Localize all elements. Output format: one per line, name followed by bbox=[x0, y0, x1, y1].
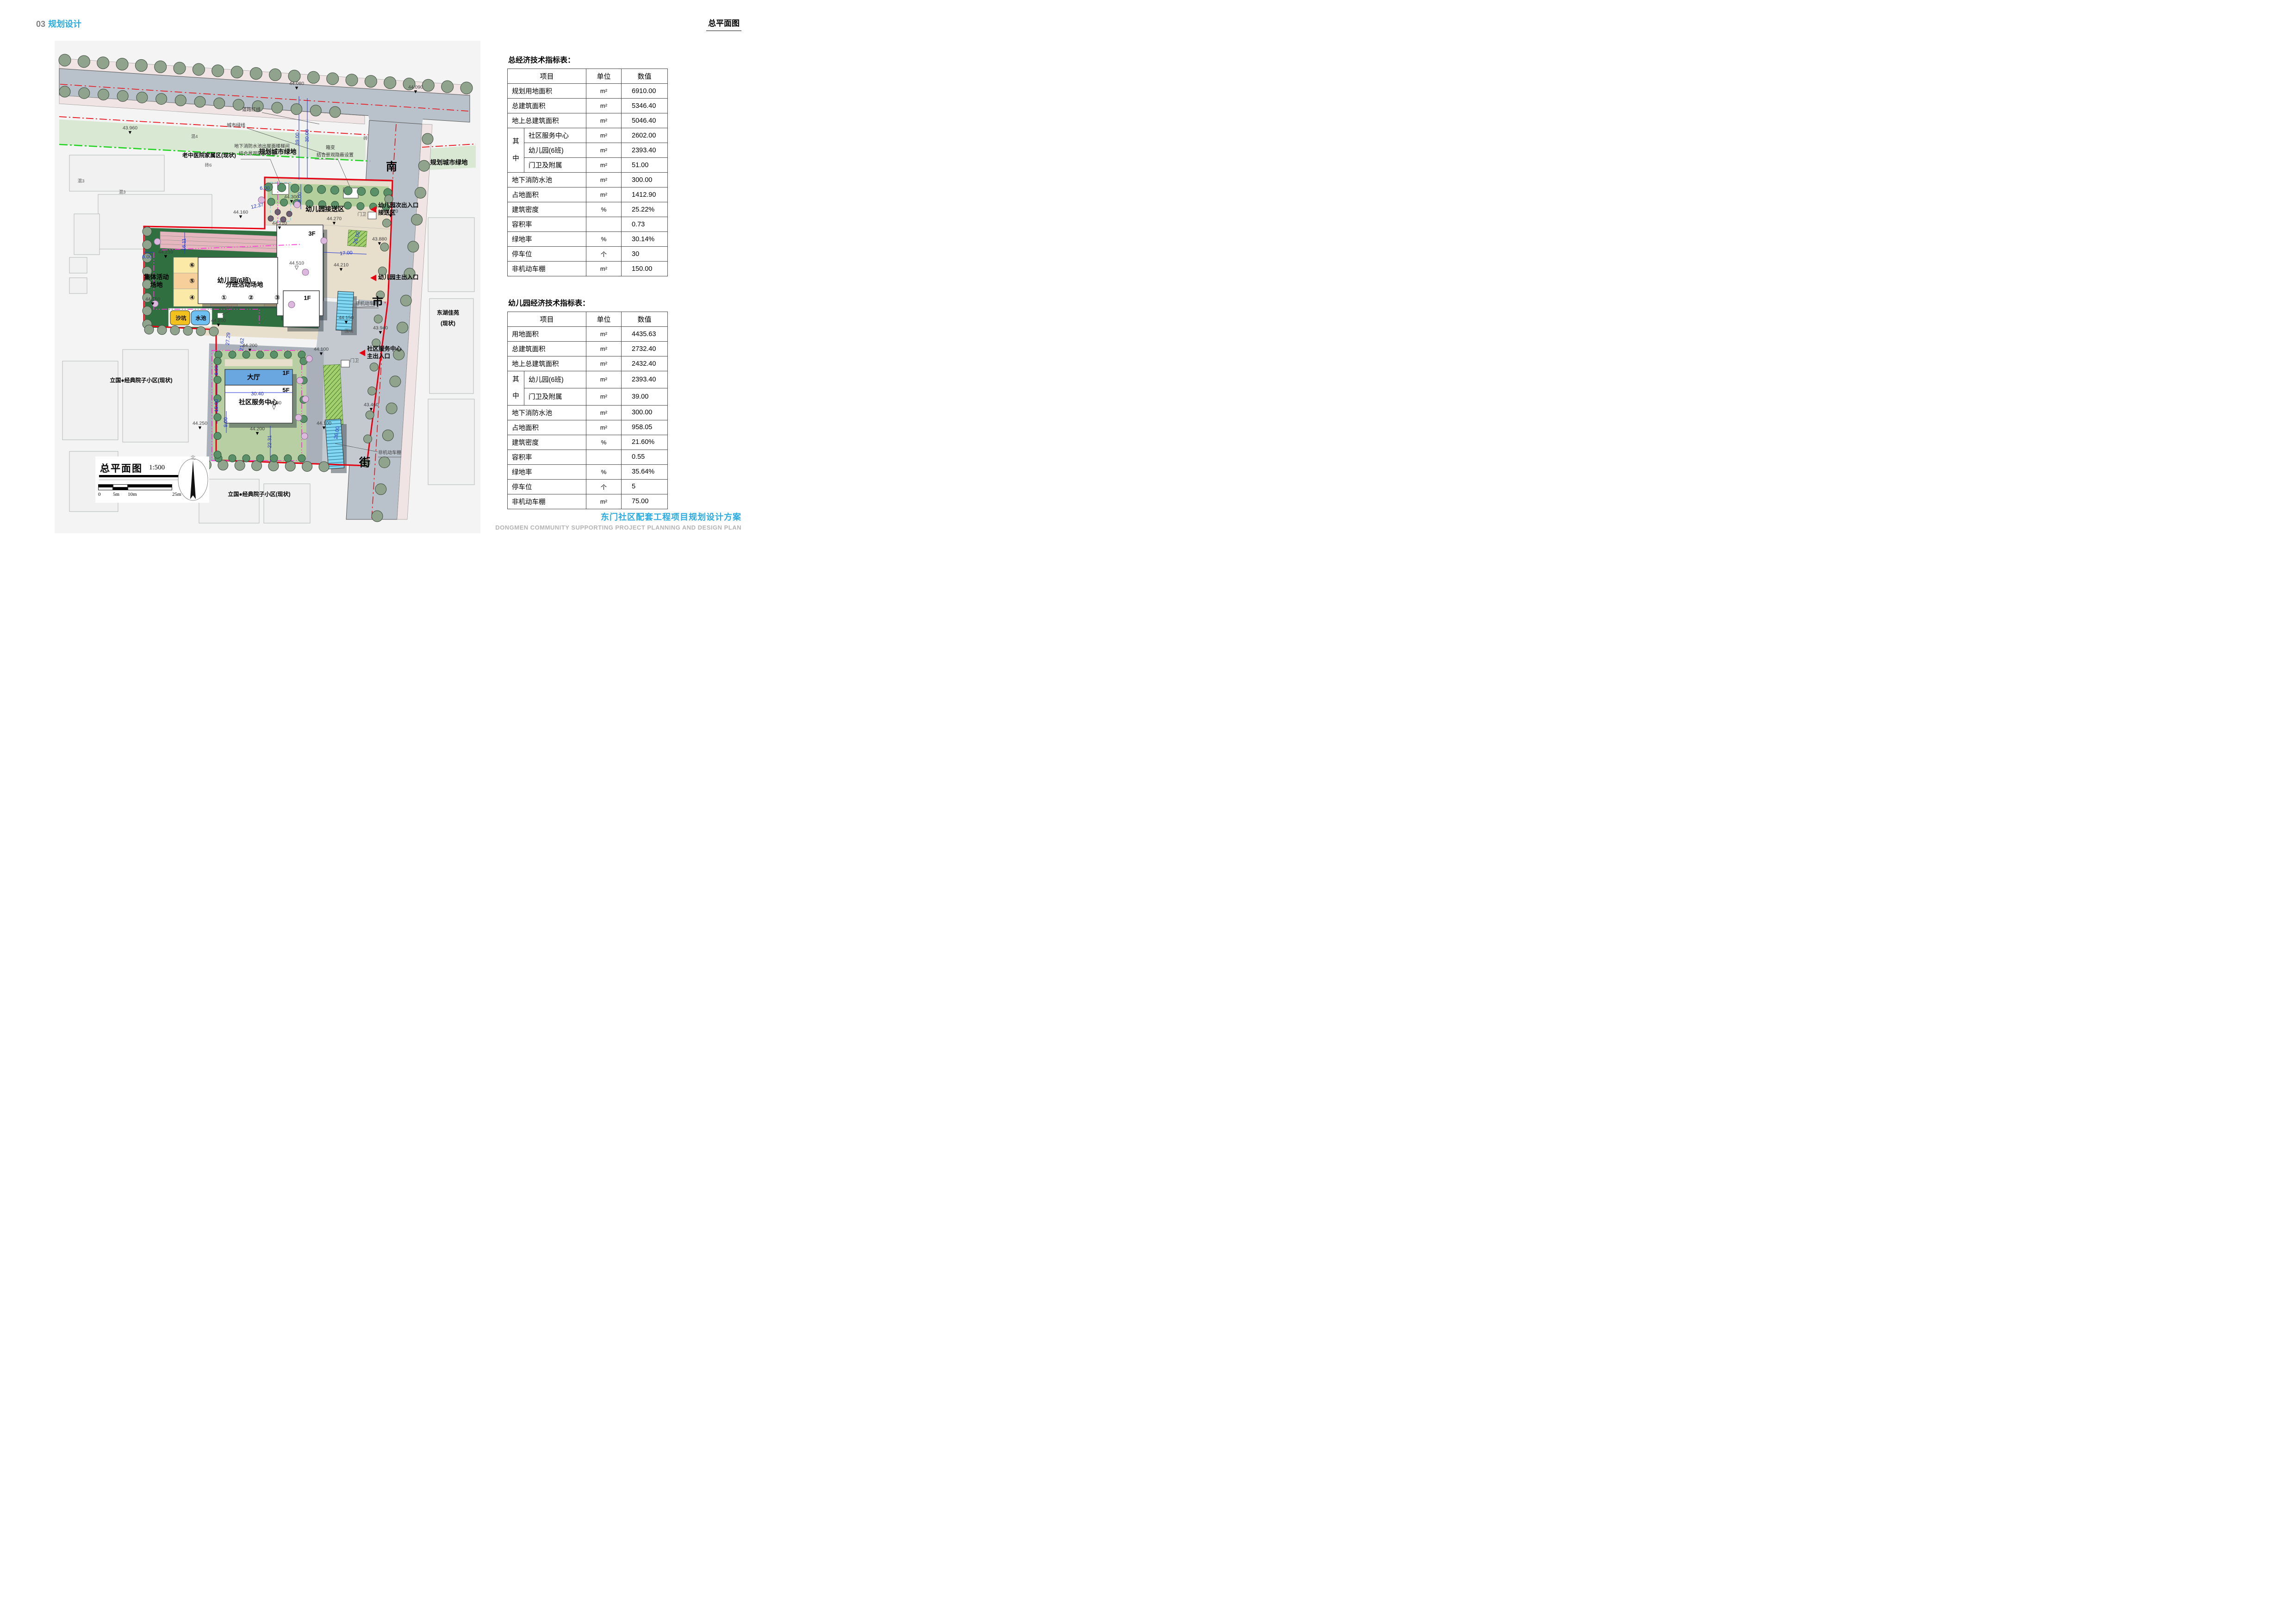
row-item: 占地面积 bbox=[508, 187, 586, 202]
row-unit: % bbox=[586, 202, 622, 217]
project-title-cn: 东门社区配套工程项目规划设计方案 bbox=[495, 511, 741, 523]
row-item: 用地面积 bbox=[508, 327, 586, 342]
row-unit: m² bbox=[586, 388, 622, 405]
elevation-triangle-icon: ▼ bbox=[334, 267, 348, 272]
plan-label: 5F bbox=[282, 387, 289, 394]
row-unit bbox=[586, 450, 622, 464]
row-value: 0.73 bbox=[622, 217, 668, 232]
legend: 总平面图 1:500 北 05m10m25m bbox=[95, 456, 209, 503]
indicator-tables: 总经济技术指标表： 项目单位数值规划用地面积m²6910.00总建筑面积m²53… bbox=[507, 54, 668, 530]
row-item: 总建筑面积 bbox=[508, 99, 586, 113]
col-value: 数值 bbox=[622, 312, 668, 327]
elevation-triangle-icon: ▼ bbox=[233, 214, 248, 219]
tree-icon bbox=[330, 186, 339, 194]
row-item: 占地面积 bbox=[508, 420, 586, 435]
tree-icon bbox=[78, 56, 90, 68]
row-value: 25.22% bbox=[622, 202, 668, 217]
tree-icon bbox=[243, 455, 250, 462]
plan-label: 集体活动 场地 bbox=[144, 274, 169, 289]
elevation-marker: 44.210▼ bbox=[334, 263, 348, 273]
tree-icon bbox=[288, 70, 300, 82]
entrance-label: 幼儿园次出入口 接送区 bbox=[378, 202, 419, 216]
plan-label: 东湖佳苑 bbox=[437, 310, 459, 317]
tree-icon bbox=[422, 79, 434, 91]
row-unit bbox=[586, 217, 622, 232]
elevation-triangle-icon: ▼ bbox=[289, 86, 304, 91]
tree-icon bbox=[344, 202, 351, 209]
col-unit: 单位 bbox=[586, 312, 622, 327]
plan-label: 旗台 bbox=[225, 306, 234, 312]
row-unit: m² bbox=[586, 356, 622, 371]
elevation-triangle-icon: ▼ bbox=[317, 425, 331, 431]
tree-icon bbox=[137, 92, 148, 103]
row-unit: m² bbox=[586, 173, 622, 187]
row-value: 39.00 bbox=[622, 388, 668, 405]
plan-label: 老中医院家属区(现状) bbox=[182, 152, 236, 159]
elevation-marker: 44.150▼ bbox=[145, 297, 160, 307]
tree-icon bbox=[174, 62, 186, 74]
table-total-title: 总经济技术指标表： bbox=[508, 54, 668, 65]
tree-icon bbox=[366, 411, 374, 419]
plan-label: 规划城市绿地 bbox=[430, 159, 468, 167]
row-value: 5346.40 bbox=[622, 99, 668, 113]
row-unit: % bbox=[586, 435, 622, 450]
tree-icon bbox=[214, 98, 225, 109]
tree-icon bbox=[256, 351, 264, 358]
tree-icon bbox=[268, 198, 275, 206]
table-total-indicators: 总经济技术指标表： 项目单位数值规划用地面积m²6910.00总建筑面积m²53… bbox=[507, 54, 668, 276]
scale-bar-segment bbox=[113, 487, 128, 490]
elevation-triangle-icon: ▽ bbox=[289, 265, 304, 270]
plan-label: (现状) bbox=[441, 320, 455, 327]
tree-icon bbox=[302, 396, 309, 402]
tree-icon bbox=[408, 241, 419, 252]
elevation-marker: 44.150▼ bbox=[339, 316, 354, 325]
plan-label: 结合景观隐蔽设置 bbox=[239, 151, 276, 157]
elevation-triangle-icon: ▼ bbox=[272, 225, 287, 231]
elevation-marker: 44.100▼ bbox=[317, 421, 331, 431]
elevation-marker: 44.080▼ bbox=[289, 81, 304, 91]
tree-icon bbox=[291, 184, 299, 193]
tree-icon bbox=[270, 455, 278, 462]
class-zone-number: ① bbox=[221, 294, 227, 302]
elevation-marker: 44.200▼ bbox=[250, 427, 265, 437]
row-item: 地下消防水池 bbox=[508, 405, 586, 420]
tree-icon bbox=[250, 68, 262, 80]
tree-icon bbox=[235, 460, 245, 470]
plan-label: 混3 bbox=[119, 190, 126, 195]
tree-icon bbox=[214, 413, 221, 421]
row-item: 容积率 bbox=[508, 217, 586, 232]
col-unit: 单位 bbox=[586, 69, 622, 84]
tree-icon bbox=[284, 455, 292, 462]
plan-label: 砖 bbox=[363, 136, 368, 142]
tree-icon bbox=[364, 435, 372, 443]
grass-paver-south bbox=[324, 364, 343, 425]
row-item: 建筑密度 bbox=[508, 202, 586, 217]
tree-icon bbox=[256, 455, 264, 462]
table-row: 绿地率%35.64% bbox=[508, 464, 668, 479]
plan-label: 混4 bbox=[191, 134, 198, 140]
row-value: 5046.40 bbox=[622, 113, 668, 128]
row-value: 30.14% bbox=[622, 232, 668, 247]
row-unit: % bbox=[586, 232, 622, 247]
elevation-marker: 44.300▼ bbox=[284, 195, 299, 205]
tree-icon bbox=[357, 202, 364, 210]
table-row: 门卫及附属m²39.00 bbox=[508, 388, 668, 405]
table-row: 停车位个5 bbox=[508, 479, 668, 494]
table-row: 地上总建筑面积m²5046.40 bbox=[508, 113, 668, 128]
elevation-marker: 43.940▼ bbox=[373, 326, 388, 336]
row-item: 建筑密度 bbox=[508, 435, 586, 450]
north-label: 北 bbox=[191, 454, 196, 461]
tree-icon bbox=[155, 61, 167, 73]
table-row: 地上总建筑面积m²2432.40 bbox=[508, 356, 668, 371]
plan-label: 结合景观隐蔽设置 bbox=[317, 153, 354, 159]
tree-icon bbox=[214, 451, 221, 458]
plan-label: 立国●经典院子小区(现状) bbox=[110, 377, 172, 384]
entrance-marker: 幼儿园主出入口 bbox=[370, 274, 419, 281]
table-row: 非机动车棚m²75.00 bbox=[508, 494, 668, 509]
tree-icon bbox=[278, 183, 286, 192]
tree-icon bbox=[212, 65, 224, 77]
entrance-marker: 社区服务中心 主出入口 bbox=[359, 345, 402, 360]
row-unit: m² bbox=[586, 99, 622, 113]
dimension-label: 6.00 bbox=[142, 254, 152, 261]
row-unit: m² bbox=[586, 113, 622, 128]
scale-bar-segment bbox=[98, 487, 113, 490]
row-value: 5 bbox=[622, 479, 668, 494]
row-item: 绿地率 bbox=[508, 464, 586, 479]
scale-tick-label: 25m bbox=[172, 492, 181, 497]
legend-title: 总平面图 bbox=[100, 461, 143, 475]
elevation-triangle-icon: ▼ bbox=[339, 320, 354, 325]
tree-icon bbox=[59, 54, 71, 66]
elevation-triangle-icon: ▼ bbox=[145, 301, 160, 306]
row-unit: m² bbox=[586, 327, 622, 342]
dimension-label: 17.00 bbox=[340, 250, 353, 257]
group-label: 其 中 bbox=[508, 371, 524, 406]
tree-icon bbox=[382, 430, 393, 441]
class-zone-number: ⑥ bbox=[189, 262, 195, 269]
elevation-triangle-icon: ▼ bbox=[250, 431, 265, 436]
tree-icon bbox=[319, 462, 329, 472]
row-value: 6910.00 bbox=[622, 84, 668, 99]
row-value: 1412.90 bbox=[622, 187, 668, 202]
class-zone-number: ③ bbox=[274, 294, 280, 302]
table-row: 门卫及附属m²51.00 bbox=[508, 158, 668, 173]
tree-icon bbox=[156, 94, 167, 105]
table-total: 项目单位数值规划用地面积m²6910.00总建筑面积m²5346.40地上总建筑… bbox=[507, 69, 668, 276]
col-item: 项目 bbox=[508, 312, 586, 327]
table-row: 建筑密度%25.22% bbox=[508, 202, 668, 217]
tree-icon bbox=[284, 351, 292, 358]
street-name-char: 市 bbox=[372, 295, 384, 309]
plan-label: 道路红线 bbox=[242, 107, 261, 113]
tree-icon bbox=[390, 376, 401, 387]
row-value: 300.00 bbox=[622, 173, 668, 187]
tree-icon bbox=[298, 455, 305, 462]
row-item: 门卫及附属 bbox=[524, 158, 586, 173]
plan-label: 1F bbox=[304, 294, 311, 302]
tree-icon bbox=[346, 74, 358, 86]
row-unit: m² bbox=[586, 371, 622, 388]
elevation-triangle-icon: ▽ bbox=[267, 405, 281, 410]
dimension-label: 6.00 bbox=[260, 186, 269, 192]
tree-icon bbox=[400, 295, 411, 306]
dimension-label: 30.40 bbox=[251, 391, 264, 398]
tree-icon bbox=[301, 433, 308, 439]
elevation-marker: 44.210▼ bbox=[158, 250, 173, 260]
class-zone-number: ⑤ bbox=[189, 277, 195, 285]
north-arrow: 北 bbox=[177, 454, 209, 503]
dimension-label: 27.29 bbox=[225, 332, 232, 346]
tree-icon bbox=[291, 104, 302, 115]
row-item: 地上总建筑面积 bbox=[508, 356, 586, 371]
tree-icon bbox=[193, 63, 205, 75]
tree-icon bbox=[321, 237, 327, 244]
table-row: 其 中幼儿园(6班)m²2393.40 bbox=[508, 371, 668, 388]
table-row: 总建筑面积m²2732.40 bbox=[508, 342, 668, 356]
tree-icon bbox=[382, 219, 391, 227]
tree-icon bbox=[135, 59, 147, 71]
elevation-marker: 43.960▼ bbox=[123, 126, 137, 136]
table-row: 停车位个30 bbox=[508, 247, 668, 262]
page: 规划城市绿地规划城市绿地道路红线城市绿线地下消防水池出屋面楼梯间结合景观隐蔽设置… bbox=[0, 0, 765, 541]
table-row: 其 中社区服务中心m²2602.00 bbox=[508, 128, 668, 143]
tree-icon bbox=[310, 105, 321, 116]
elevation-triangle-icon: ▼ bbox=[314, 351, 329, 356]
row-value: 2393.40 bbox=[622, 371, 668, 388]
plan-label: 分班活动场地 bbox=[226, 281, 263, 289]
plan-label: 地下消防水池出屋面楼梯间 bbox=[234, 144, 290, 150]
row-value: 2602.00 bbox=[622, 128, 668, 143]
plan-label: 大厅 bbox=[247, 373, 260, 381]
elevation-marker: 44.200▼ bbox=[211, 319, 226, 328]
tree-icon bbox=[116, 58, 128, 70]
tree-icon bbox=[214, 376, 221, 383]
tree-icon bbox=[288, 301, 295, 308]
tree-icon bbox=[194, 96, 205, 107]
tree-icon bbox=[229, 351, 236, 358]
tree-icon bbox=[98, 89, 109, 100]
row-value: 30 bbox=[622, 247, 668, 262]
tree-icon bbox=[209, 327, 218, 336]
tree-icon bbox=[268, 461, 279, 471]
tree-icon bbox=[157, 325, 167, 335]
class-zone-number: ④ bbox=[189, 294, 195, 302]
tree-icon bbox=[297, 377, 303, 384]
tree-icon bbox=[196, 326, 205, 336]
tree-icon bbox=[183, 326, 193, 335]
row-item: 规划用地面积 bbox=[508, 84, 586, 99]
scale-bar-segment bbox=[128, 487, 172, 490]
row-unit: 个 bbox=[586, 247, 622, 262]
group-label: 其 中 bbox=[508, 128, 524, 173]
table-kindergarten: 项目单位数值用地面积m²4435.63总建筑面积m²2732.40地上总建筑面积… bbox=[507, 312, 668, 509]
street-name-char: 南 bbox=[386, 160, 398, 174]
flag-platform bbox=[218, 313, 223, 318]
row-unit: m² bbox=[586, 420, 622, 435]
row-item: 停车位 bbox=[508, 247, 586, 262]
row-value: 35.64% bbox=[622, 464, 668, 479]
col-value: 数值 bbox=[622, 69, 668, 84]
elevation-marker: 44.160▼ bbox=[233, 210, 248, 220]
tree-icon bbox=[295, 414, 302, 421]
tree-icon bbox=[442, 81, 454, 93]
tree-icon bbox=[79, 87, 90, 99]
tree-icon bbox=[370, 363, 378, 371]
elevation-triangle-icon: ▼ bbox=[243, 348, 257, 353]
tree-icon bbox=[285, 461, 295, 471]
legend-rule bbox=[99, 475, 186, 477]
row-unit: % bbox=[586, 464, 622, 479]
table-kindergarten-indicators: 幼儿园经济技术指标表： 项目单位数值用地面积m²4435.63总建筑面积m²27… bbox=[507, 297, 668, 509]
row-value: 2393.40 bbox=[622, 143, 668, 158]
plan-label: 非机动车棚 bbox=[378, 450, 401, 457]
dimension-label: 22.31 bbox=[267, 435, 274, 448]
tree-icon bbox=[272, 102, 283, 113]
plan-label: 门卫 bbox=[350, 358, 359, 364]
row-item: 容积率 bbox=[508, 450, 586, 464]
row-unit: m² bbox=[586, 128, 622, 143]
table-row: 建筑密度%21.60% bbox=[508, 435, 668, 450]
elevation-marker: 44.500▽ bbox=[267, 401, 281, 411]
tree-icon bbox=[269, 69, 281, 81]
row-unit: m² bbox=[586, 84, 622, 99]
plan-label: 1F bbox=[282, 369, 289, 377]
table-row: 容积率0.55 bbox=[508, 450, 668, 464]
tree-icon bbox=[215, 351, 222, 358]
tree-icon bbox=[460, 82, 473, 94]
community-path bbox=[225, 359, 292, 366]
table-row: 幼儿园(6班)m²2393.40 bbox=[508, 143, 668, 158]
tree-icon bbox=[214, 357, 221, 365]
row-item: 地上总建筑面积 bbox=[508, 113, 586, 128]
entrance-arrow-icon bbox=[359, 350, 365, 356]
table-row: 非机动车棚m²150.00 bbox=[508, 262, 668, 276]
row-unit: m² bbox=[586, 143, 622, 158]
plan-label: 砖6 bbox=[205, 163, 212, 169]
row-unit: m² bbox=[586, 158, 622, 173]
page-footer: 东门社区配套工程项目规划设计方案 DONGMEN COMMUNITY SUPPO… bbox=[495, 511, 741, 531]
table-row: 绿地率%30.14% bbox=[508, 232, 668, 247]
elevation-triangle-icon: ▼ bbox=[123, 130, 137, 135]
tree-icon bbox=[327, 73, 339, 85]
row-value: 958.05 bbox=[622, 420, 668, 435]
elevation-marker: 44.100▼ bbox=[314, 347, 329, 357]
tree-icon bbox=[415, 187, 426, 198]
row-unit: m² bbox=[586, 262, 622, 276]
tree-icon bbox=[97, 57, 109, 69]
row-item: 幼儿园(6班) bbox=[524, 371, 586, 388]
entrance-label: 社区服务中心 主出入口 bbox=[367, 345, 402, 360]
row-value: 75.00 bbox=[622, 494, 668, 509]
table-kg-title: 幼儿园经济技术指标表： bbox=[508, 297, 668, 308]
row-item: 门卫及附属 bbox=[524, 388, 586, 405]
row-unit: m² bbox=[586, 494, 622, 509]
tree-icon bbox=[357, 187, 366, 195]
row-unit: m² bbox=[586, 342, 622, 356]
row-item: 绿地率 bbox=[508, 232, 586, 247]
elevation-triangle-icon: ▼ bbox=[372, 241, 387, 246]
row-value: 51.00 bbox=[622, 158, 668, 173]
row-value: 21.60% bbox=[622, 435, 668, 450]
elevation-triangle-icon: ▼ bbox=[193, 425, 207, 431]
tree-icon bbox=[418, 160, 429, 171]
elevation-triangle-icon: ▼ bbox=[364, 407, 379, 412]
tree-icon bbox=[386, 403, 397, 414]
elevation-triangle-icon: ▼ bbox=[284, 199, 299, 204]
tree-icon bbox=[175, 95, 186, 106]
legend-rule-thin bbox=[99, 480, 183, 480]
tree-icon bbox=[214, 432, 221, 440]
tree-icon bbox=[307, 71, 319, 83]
tree-icon bbox=[422, 133, 433, 144]
road-junction bbox=[365, 95, 426, 124]
row-item: 停车位 bbox=[508, 479, 586, 494]
street-name-char: 街 bbox=[359, 456, 371, 470]
col-item: 项目 bbox=[508, 69, 586, 84]
elevation-triangle-icon: ▼ bbox=[373, 330, 388, 335]
entrance-marker: 幼儿园次出入口 接送区 bbox=[370, 202, 419, 216]
tree-icon bbox=[59, 86, 70, 97]
row-value: 150.00 bbox=[622, 262, 668, 276]
tree-icon bbox=[379, 457, 390, 468]
tree-icon bbox=[170, 326, 180, 335]
tree-icon bbox=[317, 185, 326, 194]
entrance-arrow-icon bbox=[370, 275, 376, 281]
table-row: 规划用地面积m²6910.00 bbox=[508, 84, 668, 99]
table-row: 地下消防水池m²300.00 bbox=[508, 405, 668, 420]
scale-bar bbox=[98, 484, 172, 490]
table-row: 用地面积m²4435.63 bbox=[508, 327, 668, 342]
elevation-marker: 44.270▼ bbox=[327, 217, 342, 226]
project-title-en: DONGMEN COMMUNITY SUPPORTING PROJECT PLA… bbox=[495, 524, 741, 531]
row-item: 地下消防水池 bbox=[508, 173, 586, 187]
dimension-label: 9.00 bbox=[223, 417, 230, 427]
elevation-triangle-icon: ▼ bbox=[158, 254, 173, 259]
row-value: 2732.40 bbox=[622, 342, 668, 356]
entrance-arrow-icon bbox=[370, 206, 376, 212]
plan-label: 混3 bbox=[78, 179, 85, 184]
tree-icon bbox=[368, 387, 376, 395]
tree-icon bbox=[286, 211, 292, 217]
row-value: 2432.40 bbox=[622, 356, 668, 371]
elevation-marker: 44.210▼ bbox=[272, 221, 287, 231]
tree-icon bbox=[306, 356, 312, 362]
tree-icon bbox=[397, 322, 408, 333]
scale-tick-label: 0 bbox=[98, 492, 101, 497]
row-item: 非机动车棚 bbox=[508, 494, 586, 509]
page-header-left: 03规划设计 bbox=[36, 18, 81, 30]
elevation-marker: 44.510▽ bbox=[289, 261, 304, 271]
scale-tick-label: 10m bbox=[128, 492, 137, 497]
plan-label: 围墙 bbox=[344, 329, 353, 334]
row-value: 300.00 bbox=[622, 405, 668, 420]
plan-label: 幼儿园接送区 bbox=[305, 205, 344, 213]
table-row: 容积率0.73 bbox=[508, 217, 668, 232]
row-value: 0.55 bbox=[622, 450, 668, 464]
elevation-triangle-icon: ▼ bbox=[211, 323, 226, 328]
dimension-label: 16.11 bbox=[181, 238, 188, 251]
guard-house-south bbox=[341, 360, 349, 367]
elevation-marker: 43.880▼ bbox=[372, 237, 387, 247]
legend-scale: 1:500 bbox=[149, 464, 165, 472]
tree-icon bbox=[330, 106, 341, 118]
tree-icon bbox=[384, 77, 396, 89]
row-item: 幼儿园(6班) bbox=[524, 143, 586, 158]
